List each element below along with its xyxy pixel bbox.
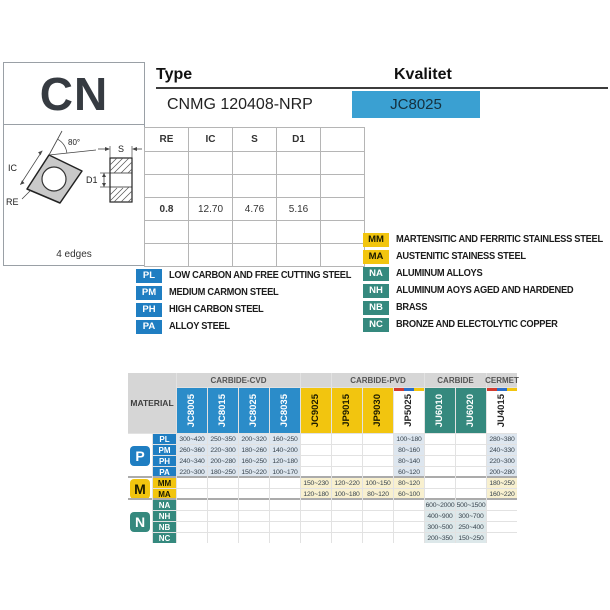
- speed-range-cell: [208, 478, 238, 488]
- speed-range-cell: [239, 478, 269, 488]
- speed-range-cell: [487, 522, 517, 532]
- dimension-cell: [321, 152, 365, 175]
- legend-row: NAALUMINUM ALLOYS: [363, 265, 610, 282]
- material-group-icon-cell: P: [128, 434, 152, 477]
- speed-range-cell: [425, 467, 455, 477]
- grade-name: JC8035: [280, 394, 290, 427]
- speed-range-cell: [177, 500, 207, 510]
- material-code-cell: NA: [153, 500, 176, 510]
- angle-label: 80°: [68, 138, 80, 147]
- grade-color-strip: [487, 388, 517, 391]
- strip-segment: [363, 388, 393, 391]
- speed-range-cell: 180~250: [487, 478, 517, 488]
- speed-range-cell: [239, 500, 269, 510]
- speed-range-cell: 240~330: [487, 445, 517, 455]
- dimension-column-header: D1: [277, 128, 321, 152]
- speed-range-cell: 100~180: [332, 489, 362, 499]
- type-label: Type: [156, 66, 192, 84]
- grade-column-header: JC8005: [177, 388, 207, 433]
- legend-right: MMMARTENSITIC AND FERRITIC STAINLESS STE…: [363, 231, 610, 333]
- speed-range-cell: 80~140: [394, 456, 424, 466]
- strip-segment: [507, 388, 517, 391]
- material-label: BRASS: [396, 302, 427, 313]
- speed-range-cell: 140~200: [270, 445, 300, 455]
- speed-range-cell: [177, 478, 207, 488]
- grade-value-box: JC8025: [352, 91, 480, 118]
- dimension-cell: [233, 175, 277, 198]
- dimension-column-header: IC: [189, 128, 233, 152]
- dimension-cell: [189, 152, 233, 175]
- legend-row: PAALLOY STEEL: [136, 318, 365, 335]
- speed-range-cell: 220~300: [487, 456, 517, 466]
- grade-color-strip: [270, 388, 300, 391]
- dimension-row: [145, 175, 365, 198]
- grade-name: JU4015: [497, 394, 507, 427]
- grade-color-strip: [425, 388, 455, 391]
- speed-range-cell: [270, 522, 300, 532]
- legend-row: NCBRONZE AND ELECTOLYTIC COPPER: [363, 316, 610, 333]
- dimension-cell: [233, 152, 277, 175]
- legend-row: NHALUMINUM AOYS AGED AND HARDENED: [363, 282, 610, 299]
- speed-range-cell: 80~120: [363, 489, 393, 499]
- grade-color-strip: [239, 388, 269, 391]
- dimension-cell: [189, 175, 233, 198]
- material-code-badge: NH: [363, 284, 389, 298]
- insert-diagram: 80° IC RE: [4, 125, 142, 243]
- material-code-badge: NA: [363, 267, 389, 281]
- speed-range-cell: [332, 522, 362, 532]
- speed-range-cell: 60~100: [394, 489, 424, 499]
- speed-range-cell: 300~420: [177, 434, 207, 444]
- speed-range-cell: [270, 489, 300, 499]
- strip-segment: [394, 388, 404, 391]
- dimension-cell: [277, 244, 321, 267]
- speed-range-cell: [270, 500, 300, 510]
- grade-name: JU6020: [466, 394, 476, 427]
- legend-row: MAAUSTENITIC STAINESS STEEL: [363, 248, 610, 265]
- material-code-cell: NC: [153, 533, 176, 543]
- strip-segment: [301, 388, 331, 391]
- grades-table: MATERIALCARBIDE-CVDCARBIDE-PVDCARBIDECER…: [128, 373, 517, 543]
- dimension-cell: [277, 152, 321, 175]
- header-rule: [156, 87, 608, 89]
- material-code-badge: PM: [136, 286, 162, 300]
- speed-range-cell: 280~380: [487, 434, 517, 444]
- speed-range-cell: [332, 445, 362, 455]
- dimension-row: [145, 152, 365, 175]
- grade-label: Kvalitet: [394, 66, 452, 84]
- strip-segment: [270, 388, 300, 391]
- material-code-badge: PH: [136, 303, 162, 317]
- material-label: MEDIUM CARMON STEEL: [169, 287, 278, 298]
- legend-left: PLLOW CARBON AND FREE CUTTING STEELPMMED…: [136, 267, 365, 335]
- speed-range-cell: [425, 456, 455, 466]
- speed-range-cell: 600~2000: [425, 500, 455, 510]
- speed-range-cell: [208, 511, 238, 521]
- speed-range-cell: [332, 467, 362, 477]
- speed-range-cell: [177, 489, 207, 499]
- speed-range-cell: [208, 533, 238, 543]
- legend-row: PMMEDIUM CARMON STEEL: [136, 284, 365, 301]
- speed-range-cell: [270, 478, 300, 488]
- material-label: MARTENSITIC AND FERRITIC STAINLESS STEEL: [396, 234, 603, 245]
- speed-range-cell: 100~180: [394, 434, 424, 444]
- speed-range-cell: [456, 456, 486, 466]
- dimension-cell: [321, 244, 365, 267]
- dimension-cell: [233, 221, 277, 244]
- material-code-cell: PA: [153, 467, 176, 477]
- material-group-icon-cell: N: [128, 500, 152, 543]
- speed-range-cell: [394, 522, 424, 532]
- strip-segment: [239, 388, 269, 391]
- strip-segment: [414, 388, 424, 391]
- speed-range-cell: [301, 445, 331, 455]
- type-value: CNMG 120408-NRP: [167, 96, 313, 114]
- speed-range-cell: [456, 478, 486, 488]
- dimension-cell: [145, 175, 189, 198]
- speed-range-cell: [394, 500, 424, 510]
- insert-hole: [42, 167, 66, 191]
- material-label: AUSTENITIC STAINESS STEEL: [396, 251, 526, 262]
- speed-range-cell: [301, 500, 331, 510]
- material-code-badge: MA: [363, 250, 389, 264]
- series-code-box: CN: [3, 62, 145, 125]
- speed-range-cell: [425, 445, 455, 455]
- material-code-badge: PA: [136, 320, 162, 334]
- material-header-cell: MATERIAL: [128, 373, 176, 433]
- speed-range-cell: 220~300: [208, 445, 238, 455]
- edges-note: 4 edges: [4, 249, 144, 260]
- grade-group-header: CARBIDE: [425, 373, 486, 387]
- strip-segment: [487, 388, 497, 391]
- speed-range-cell: 160~220: [487, 489, 517, 499]
- material-code-badge: MM: [363, 233, 389, 247]
- speed-range-cell: [363, 456, 393, 466]
- material-label: ALUMINUM ALLOYS: [396, 268, 482, 279]
- speed-range-cell: [363, 500, 393, 510]
- dimension-cell: [277, 221, 321, 244]
- dimension-header-row: REICSD1: [145, 128, 365, 152]
- speed-range-cell: [270, 533, 300, 543]
- strip-segment: [332, 388, 362, 391]
- dimension-cell: [277, 175, 321, 198]
- material-code-badge: NB: [363, 301, 389, 315]
- speed-range-cell: [394, 533, 424, 543]
- speed-range-cell: 120~180: [301, 489, 331, 499]
- speed-range-cell: 150~220: [239, 467, 269, 477]
- speed-range-cell: 80~120: [394, 478, 424, 488]
- grade-name: JP9030: [373, 394, 383, 427]
- speed-range-cell: 120~220: [332, 478, 362, 488]
- speed-range-cell: [208, 500, 238, 510]
- speed-range-cell: 200~280: [487, 467, 517, 477]
- re-label: RE: [6, 197, 19, 207]
- speed-range-cell: [301, 511, 331, 521]
- grade-column-header: JP9030: [363, 388, 393, 433]
- speed-range-cell: [208, 522, 238, 532]
- grade-name: JC9025: [311, 394, 321, 427]
- grade-column-header: JU4015: [487, 388, 517, 433]
- speed-range-cell: 250~350: [208, 434, 238, 444]
- grade-name: JU6010: [435, 394, 445, 427]
- speed-range-cell: [239, 533, 269, 543]
- material-code-badge: PL: [136, 269, 162, 283]
- strip-segment: [177, 388, 207, 391]
- speed-range-cell: [363, 511, 393, 521]
- grade-color-strip: [301, 388, 331, 391]
- speed-range-cell: [363, 434, 393, 444]
- speed-range-cell: [456, 489, 486, 499]
- speed-range-cell: [487, 511, 517, 521]
- grade-column-header: JU6020: [456, 388, 486, 433]
- material-label: ALLOY STEEL: [169, 321, 230, 332]
- grade-name: JP9015: [342, 394, 352, 427]
- dimension-cell: 12.70: [189, 198, 233, 221]
- speed-range-cell: 200~280: [208, 456, 238, 466]
- legend-row: PLLOW CARBON AND FREE CUTTING STEEL: [136, 267, 365, 284]
- speed-range-cell: [363, 467, 393, 477]
- strip-segment: [456, 388, 486, 391]
- speed-range-cell: 220~300: [177, 467, 207, 477]
- speed-range-cell: 300~700: [456, 511, 486, 521]
- ic-label: IC: [8, 163, 18, 173]
- material-group-icon-n: N: [130, 512, 150, 532]
- grade-group-header: CERMET: [487, 373, 517, 387]
- material-group-icon-m: M: [130, 479, 150, 499]
- grade-name: JC8025: [249, 394, 259, 427]
- grade-column-header: JU6010: [425, 388, 455, 433]
- grade-color-strip: [456, 388, 486, 391]
- dimension-cell: 4.76: [233, 198, 277, 221]
- speed-range-cell: 200~350: [425, 533, 455, 543]
- legend-row: PHHIGH CARBON STEEL: [136, 301, 365, 318]
- speed-range-cell: [425, 478, 455, 488]
- dimension-row: 0.812.704.765.16: [145, 198, 365, 221]
- material-code-cell: PH: [153, 456, 176, 466]
- speed-range-cell: [177, 533, 207, 543]
- speed-range-cell: [301, 467, 331, 477]
- speed-range-cell: [394, 511, 424, 521]
- material-code-cell: MA: [153, 489, 176, 499]
- speed-range-cell: 260~360: [177, 445, 207, 455]
- speed-range-cell: [239, 522, 269, 532]
- material-label: BRONZE AND ELECTOLYTIC COPPER: [396, 319, 558, 330]
- dimension-row: [145, 244, 365, 267]
- dimension-cell: [233, 244, 277, 267]
- dimension-cell: [145, 152, 189, 175]
- grade-color-strip: [394, 388, 424, 391]
- speed-range-cell: [208, 489, 238, 499]
- speed-range-cell: [363, 522, 393, 532]
- grade-group-header: [301, 373, 331, 387]
- grade-color-strip: [332, 388, 362, 391]
- speed-range-cell: [177, 511, 207, 521]
- dimension-row: [145, 221, 365, 244]
- material-code-cell: NB: [153, 522, 176, 532]
- speed-range-cell: 240~340: [177, 456, 207, 466]
- speed-range-cell: [332, 533, 362, 543]
- speed-range-cell: [363, 533, 393, 543]
- dimension-cell: [145, 244, 189, 267]
- dimension-cell: [189, 244, 233, 267]
- insert-diagram-box: 80° IC RE: [3, 124, 145, 266]
- grade-color-strip: [177, 388, 207, 391]
- dimension-cell: 0.8: [145, 198, 189, 221]
- grade-name: JC8005: [187, 394, 197, 427]
- grade-group-header: CARBIDE-CVD: [177, 373, 300, 387]
- speed-range-cell: [332, 434, 362, 444]
- strip-segment: [208, 388, 238, 391]
- speed-range-cell: [239, 489, 269, 499]
- material-code-cell: MM: [153, 478, 176, 488]
- grade-column-header: JC8025: [239, 388, 269, 433]
- grade-group-header: CARBIDE-PVD: [332, 373, 424, 387]
- grade-column-header: JP9015: [332, 388, 362, 433]
- speed-range-cell: 500~1500: [456, 500, 486, 510]
- speed-range-cell: 150~230: [301, 478, 331, 488]
- dimension-column-header: RE: [145, 128, 189, 152]
- speed-range-cell: 100~150: [363, 478, 393, 488]
- legend-row: NBBRASS: [363, 299, 610, 316]
- legend-row: MMMARTENSITIC AND FERRITIC STAINLESS STE…: [363, 231, 610, 248]
- material-code-cell: PL: [153, 434, 176, 444]
- dimension-cell: [189, 221, 233, 244]
- material-group-icon-p: P: [130, 446, 150, 466]
- speed-range-cell: [239, 511, 269, 521]
- speed-range-cell: 200~320: [239, 434, 269, 444]
- dimension-cell: [145, 221, 189, 244]
- speed-range-cell: [425, 434, 455, 444]
- speed-range-cell: 80~160: [394, 445, 424, 455]
- speed-range-cell: [487, 500, 517, 510]
- speed-range-cell: [301, 434, 331, 444]
- speed-range-cell: 180~250: [208, 467, 238, 477]
- dimension-column-header: S: [233, 128, 277, 152]
- series-code: CN: [40, 67, 108, 121]
- grade-name: JP5025: [404, 394, 414, 427]
- material-code-badge: NC: [363, 318, 389, 332]
- material-code-cell: NH: [153, 511, 176, 521]
- dimension-column-header: [321, 128, 365, 152]
- grade-color-strip: [208, 388, 238, 391]
- grade-name: JC8015: [218, 394, 228, 427]
- speed-range-cell: [456, 445, 486, 455]
- datasheet-page: CN 80° IC RE: [0, 0, 610, 610]
- dimension-cell: 5.16: [277, 198, 321, 221]
- material-label: ALUMINUM AOYS AGED AND HARDENED: [396, 285, 573, 296]
- speed-range-cell: 160~250: [239, 456, 269, 466]
- speed-range-cell: 160~250: [270, 434, 300, 444]
- material-label: HIGH CARBON STEEL: [169, 304, 263, 315]
- dimension-cell: [321, 175, 365, 198]
- speed-range-cell: [301, 456, 331, 466]
- grade-column-header: JP5025: [394, 388, 424, 433]
- speed-range-cell: [456, 467, 486, 477]
- grade-column-header: JC8015: [208, 388, 238, 433]
- speed-range-cell: [177, 522, 207, 532]
- speed-range-cell: [332, 511, 362, 521]
- strip-segment: [425, 388, 455, 391]
- speed-range-cell: [487, 533, 517, 543]
- speed-range-cell: 180~260: [239, 445, 269, 455]
- speed-range-cell: 120~180: [270, 456, 300, 466]
- speed-range-cell: [363, 445, 393, 455]
- material-code-cell: PM: [153, 445, 176, 455]
- speed-range-cell: 250~400: [456, 522, 486, 532]
- speed-range-cell: [456, 434, 486, 444]
- dimension-cell: [321, 198, 365, 221]
- speed-range-cell: [301, 522, 331, 532]
- speed-range-cell: 60~120: [394, 467, 424, 477]
- material-group-icon-cell: M: [128, 478, 152, 499]
- speed-range-cell: 150~250: [456, 533, 486, 543]
- speed-range-cell: 100~170: [270, 467, 300, 477]
- speed-range-cell: [332, 500, 362, 510]
- dimension-table: REICSD10.812.704.765.16: [144, 127, 365, 267]
- dimension-cell: [321, 221, 365, 244]
- speed-range-cell: [270, 511, 300, 521]
- speed-range-cell: [425, 489, 455, 499]
- speed-range-cell: [332, 456, 362, 466]
- grade-color-strip: [363, 388, 393, 391]
- strip-segment: [497, 388, 507, 391]
- grade-column-header: JC9025: [301, 388, 331, 433]
- speed-range-cell: 300~500: [425, 522, 455, 532]
- grade-column-header: JC8035: [270, 388, 300, 433]
- speed-range-cell: 400~900: [425, 511, 455, 521]
- material-label: LOW CARBON AND FREE CUTTING STEEL: [169, 270, 351, 281]
- speed-range-cell: [301, 533, 331, 543]
- d1-label: D1: [86, 175, 98, 185]
- grade-value: JC8025: [390, 96, 442, 113]
- s-label: S: [118, 144, 124, 154]
- strip-segment: [404, 388, 414, 391]
